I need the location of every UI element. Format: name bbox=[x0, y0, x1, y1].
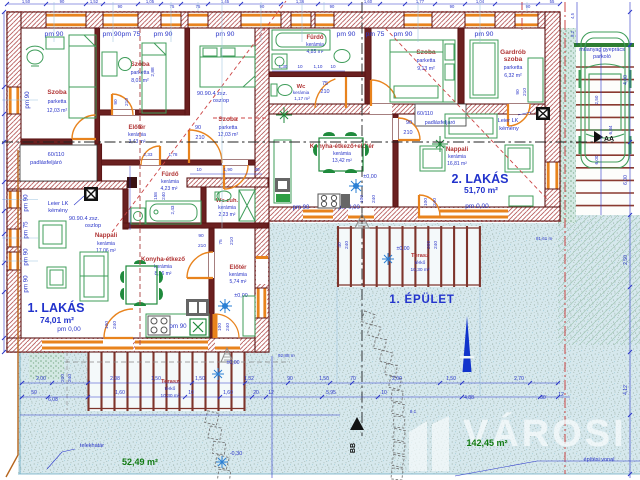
svg-text:10: 10 bbox=[196, 167, 202, 172]
svg-text:2,00: 2,00 bbox=[392, 376, 402, 382]
svg-text:6,00: 6,00 bbox=[594, 155, 599, 164]
svg-text:Terasz: Terasz bbox=[411, 253, 429, 259]
svg-text:2,88: 2,88 bbox=[150, 67, 156, 77]
svg-text:70: 70 bbox=[350, 376, 356, 382]
svg-text:pm 90: pm 90 bbox=[337, 31, 356, 38]
svg-text:parketta: parketta bbox=[417, 58, 436, 64]
svg-text:240: 240 bbox=[112, 321, 118, 329]
svg-text:60/110: 60/110 bbox=[48, 152, 65, 158]
svg-text:BB: BB bbox=[350, 443, 357, 453]
svg-text:pm 90: pm 90 bbox=[23, 248, 30, 266]
svg-text:81,61 m: 81,61 m bbox=[536, 236, 553, 241]
svg-text:2,00: 2,00 bbox=[36, 376, 46, 382]
svg-text:telekhatár: telekhatár bbox=[80, 443, 104, 449]
svg-text:10,30 m²: 10,30 m² bbox=[411, 267, 430, 273]
svg-text:pm 90: pm 90 bbox=[23, 275, 30, 293]
svg-text:5,95: 5,95 bbox=[326, 390, 336, 396]
svg-text:1. ÉPÜLET: 1. ÉPÜLET bbox=[389, 293, 454, 306]
svg-text:Előtér: Előtér bbox=[229, 265, 247, 271]
svg-text:2,33: 2,33 bbox=[144, 152, 153, 157]
svg-text:1,04: 1,04 bbox=[476, 0, 485, 4]
svg-text:parkoló: parkoló bbox=[593, 54, 611, 60]
svg-text:szoba: szoba bbox=[504, 56, 523, 63]
svg-text:12: 12 bbox=[268, 390, 274, 396]
svg-text:50: 50 bbox=[31, 390, 37, 396]
svg-text:100: 100 bbox=[104, 321, 110, 329]
svg-text:158: 158 bbox=[153, 192, 158, 200]
svg-text:90.90.4 zsz.: 90.90.4 zsz. bbox=[69, 216, 100, 222]
svg-text:10: 10 bbox=[297, 64, 303, 69]
svg-text:51,70 m²: 51,70 m² bbox=[464, 185, 498, 195]
svg-text:10: 10 bbox=[330, 64, 336, 69]
svg-text:kémény: kémény bbox=[48, 208, 68, 214]
svg-text:92,88 m: 92,88 m bbox=[278, 353, 295, 358]
svg-text:1,05: 1,05 bbox=[146, 0, 155, 4]
svg-text:padlásfeljáró: padlásfeljáró bbox=[425, 120, 456, 126]
svg-text:kerámia: kerámia bbox=[333, 151, 351, 157]
svg-text:kerámia: kerámia bbox=[229, 272, 247, 278]
svg-text:térkő: térkő bbox=[415, 260, 426, 266]
svg-text:30: 30 bbox=[254, 167, 260, 172]
svg-text:Leier LK: Leier LK bbox=[498, 118, 519, 124]
svg-text:1,60: 1,60 bbox=[223, 390, 233, 396]
svg-text:142,45 m²: 142,45 m² bbox=[466, 438, 507, 448]
svg-text:1,60: 1,60 bbox=[115, 390, 125, 396]
svg-text:240: 240 bbox=[225, 323, 231, 331]
svg-text:210: 210 bbox=[522, 88, 528, 96]
svg-text:pm 0,00: pm 0,00 bbox=[57, 326, 81, 333]
svg-text:oszlop: oszlop bbox=[85, 223, 101, 229]
svg-text:pm 0,00: pm 0,00 bbox=[465, 203, 489, 210]
svg-text:6,00: 6,00 bbox=[623, 175, 629, 185]
svg-text:-0,30: -0,30 bbox=[230, 451, 243, 457]
svg-text:pm 90: pm 90 bbox=[154, 31, 173, 38]
svg-text:parketta: parketta bbox=[504, 65, 523, 71]
svg-text:1,30: 1,30 bbox=[279, 64, 288, 69]
svg-text:12: 12 bbox=[558, 392, 564, 398]
svg-text:1,78: 1,78 bbox=[169, 152, 178, 157]
svg-text:6,32 m²: 6,32 m² bbox=[504, 73, 522, 79]
svg-text:210: 210 bbox=[229, 237, 235, 245]
svg-text:4,88: 4,88 bbox=[464, 395, 474, 401]
svg-text:52,49 m²: 52,49 m² bbox=[122, 457, 158, 467]
svg-text:8,2: 8,2 bbox=[570, 30, 575, 36]
svg-text:10,30 m²: 10,30 m² bbox=[161, 393, 180, 399]
svg-text:1,50: 1,50 bbox=[22, 0, 31, 4]
svg-text:60/110: 60/110 bbox=[417, 111, 433, 117]
svg-text:210: 210 bbox=[124, 98, 130, 106]
svg-text:1,77: 1,77 bbox=[416, 0, 425, 4]
svg-text:90: 90 bbox=[406, 120, 412, 126]
svg-text:10: 10 bbox=[381, 390, 387, 396]
svg-text:pm 90: pm 90 bbox=[216, 31, 235, 38]
svg-text:75: 75 bbox=[218, 239, 224, 245]
svg-text:210: 210 bbox=[320, 89, 329, 95]
svg-text:kémény: kémény bbox=[499, 126, 519, 132]
svg-text:210: 210 bbox=[195, 135, 204, 141]
svg-text:1. LAKÁS: 1. LAKÁS bbox=[28, 300, 85, 315]
svg-text:1,50: 1,50 bbox=[195, 376, 205, 382]
svg-text:240: 240 bbox=[161, 192, 166, 200]
svg-text:Terasz: Terasz bbox=[161, 379, 179, 385]
svg-text:90: 90 bbox=[450, 4, 455, 9]
svg-text:1,52: 1,52 bbox=[244, 376, 254, 382]
svg-text:1,36: 1,36 bbox=[296, 0, 305, 4]
svg-text:6,84: 6,84 bbox=[608, 125, 613, 134]
svg-text:240: 240 bbox=[371, 195, 377, 203]
svg-text:parketta: parketta bbox=[219, 125, 238, 131]
svg-text:4,23 m²: 4,23 m² bbox=[161, 186, 178, 192]
svg-text:13,42 m²: 13,42 m² bbox=[332, 158, 352, 164]
svg-text:kerámia: kerámia bbox=[97, 241, 115, 247]
svg-text:parketta: parketta bbox=[48, 99, 67, 105]
svg-text:pm 90: pm 90 bbox=[24, 91, 31, 109]
svg-text:30: 30 bbox=[540, 395, 546, 401]
svg-text:90: 90 bbox=[195, 125, 201, 131]
svg-text:1,50: 1,50 bbox=[446, 376, 456, 382]
svg-text:±0,00: ±0,00 bbox=[397, 246, 410, 252]
svg-text:12,03 m²: 12,03 m² bbox=[47, 108, 68, 114]
svg-text:200: 200 bbox=[426, 241, 432, 249]
svg-text:6,08: 6,08 bbox=[48, 397, 58, 403]
svg-text:17,06 m²: 17,06 m² bbox=[96, 248, 116, 254]
svg-text:90: 90 bbox=[260, 4, 265, 9]
svg-text:210: 210 bbox=[198, 243, 206, 249]
svg-text:kerámia: kerámia bbox=[293, 90, 310, 95]
svg-text:90: 90 bbox=[113, 99, 119, 105]
svg-text:kerámia: kerámia bbox=[128, 132, 146, 138]
svg-text:Szoba: Szoba bbox=[218, 116, 238, 123]
svg-text:pm 90: pm 90 bbox=[475, 31, 494, 38]
svg-text:240: 240 bbox=[433, 241, 439, 249]
svg-text:Fürdő: Fürdő bbox=[162, 172, 179, 178]
svg-text:AA: AA bbox=[604, 136, 614, 143]
svg-text:pm 90: pm 90 bbox=[394, 31, 413, 38]
svg-text:20: 20 bbox=[253, 390, 259, 396]
svg-text:210: 210 bbox=[403, 130, 412, 136]
svg-text:pm 75: pm 75 bbox=[23, 221, 30, 239]
svg-text:2,50: 2,50 bbox=[623, 255, 629, 265]
svg-text:4,5: 4,5 bbox=[570, 12, 575, 18]
svg-text:240: 240 bbox=[432, 198, 438, 206]
svg-text:Fürdő: Fürdő bbox=[307, 35, 324, 41]
svg-text:építési vonal: építési vonal bbox=[584, 457, 615, 463]
svg-text:75: 75 bbox=[196, 4, 201, 9]
svg-text:±0,00: ±0,00 bbox=[227, 360, 240, 366]
svg-text:100: 100 bbox=[359, 195, 365, 203]
svg-text:1,52: 1,52 bbox=[90, 0, 99, 4]
svg-text:2,50: 2,50 bbox=[594, 95, 599, 104]
svg-text:Nappali: Nappali bbox=[95, 232, 118, 239]
svg-text:1,60: 1,60 bbox=[364, 0, 373, 4]
svg-text:40: 40 bbox=[337, 242, 343, 248]
svg-text:Gardrób: Gardrób bbox=[500, 49, 526, 56]
svg-text:Előtér: Előtér bbox=[128, 125, 146, 131]
svg-text:90: 90 bbox=[515, 89, 521, 95]
svg-text:10: 10 bbox=[188, 390, 194, 396]
svg-text:1,90: 1,90 bbox=[224, 167, 233, 172]
svg-text:kerámia: kerámia bbox=[218, 205, 236, 211]
svg-text:±0,00: ±0,00 bbox=[363, 174, 376, 180]
svg-text:kerámia: kerámia bbox=[448, 154, 466, 160]
svg-text:Nappali: Nappali bbox=[446, 146, 469, 153]
svg-text:90.90.4 zsz.: 90.90.4 zsz. bbox=[197, 91, 228, 97]
svg-text:pm 90: pm 90 bbox=[23, 194, 30, 212]
svg-text:12,03 m²: 12,03 m² bbox=[218, 132, 239, 138]
svg-text:padlásfeljáró: padlásfeljáró bbox=[30, 160, 62, 166]
svg-text:16,81 m²: 16,81 m² bbox=[447, 161, 467, 167]
svg-text:térkő: térkő bbox=[165, 386, 176, 392]
svg-text:75: 75 bbox=[322, 81, 328, 87]
svg-text:9,1: 9,1 bbox=[410, 409, 417, 414]
svg-text:1,17 m²: 1,17 m² bbox=[294, 96, 310, 101]
svg-text:2,43: 2,43 bbox=[170, 205, 175, 214]
svg-text:90: 90 bbox=[330, 4, 335, 9]
svg-text:4,12: 4,12 bbox=[623, 385, 629, 395]
svg-text:200: 200 bbox=[60, 374, 66, 382]
svg-text:90: 90 bbox=[287, 376, 293, 382]
svg-text:2,70: 2,70 bbox=[514, 376, 524, 382]
svg-text:4,00: 4,00 bbox=[623, 75, 629, 85]
svg-text:pm 90: pm 90 bbox=[103, 31, 122, 38]
svg-text:90: 90 bbox=[60, 0, 65, 4]
svg-text:pm 90: pm 90 bbox=[293, 205, 310, 211]
svg-text:75: 75 bbox=[170, 4, 175, 9]
svg-text:90: 90 bbox=[526, 4, 531, 9]
svg-text:90: 90 bbox=[118, 4, 123, 9]
svg-text:100: 100 bbox=[217, 323, 223, 331]
svg-text:1,50: 1,50 bbox=[151, 376, 161, 382]
svg-text:oszlop: oszlop bbox=[213, 98, 229, 104]
svg-text:2,23 m²: 2,23 m² bbox=[219, 212, 236, 218]
svg-text:kerámia: kerámia bbox=[161, 179, 179, 185]
svg-text:Szoba: Szoba bbox=[47, 89, 67, 96]
svg-text:1,50: 1,50 bbox=[319, 376, 329, 382]
svg-text:55: 55 bbox=[550, 0, 555, 4]
svg-text:műanyag gyeprács: műanyag gyeprács bbox=[579, 47, 625, 53]
svg-text:1,10: 1,10 bbox=[314, 64, 323, 69]
svg-text:2,08: 2,08 bbox=[110, 376, 120, 382]
svg-text:2. LAKÁS: 2. LAKÁS bbox=[452, 171, 509, 186]
svg-text:100: 100 bbox=[423, 198, 429, 206]
svg-text:240: 240 bbox=[344, 241, 350, 249]
svg-text:74,01 m²: 74,01 m² bbox=[40, 315, 74, 325]
svg-text:5,74 m²: 5,74 m² bbox=[230, 279, 247, 285]
svg-text:90: 90 bbox=[198, 233, 204, 239]
svg-text:pm 75: pm 75 bbox=[122, 31, 141, 38]
svg-text:pm 75: pm 75 bbox=[366, 31, 385, 38]
svg-text:VÁROSI: VÁROSI bbox=[463, 411, 627, 455]
svg-text:pm 90: pm 90 bbox=[169, 323, 187, 330]
svg-text:Leier LK: Leier LK bbox=[48, 201, 69, 207]
svg-text:Konyha-étkező: Konyha-étkező bbox=[141, 256, 185, 263]
svg-text:240: 240 bbox=[67, 374, 73, 382]
